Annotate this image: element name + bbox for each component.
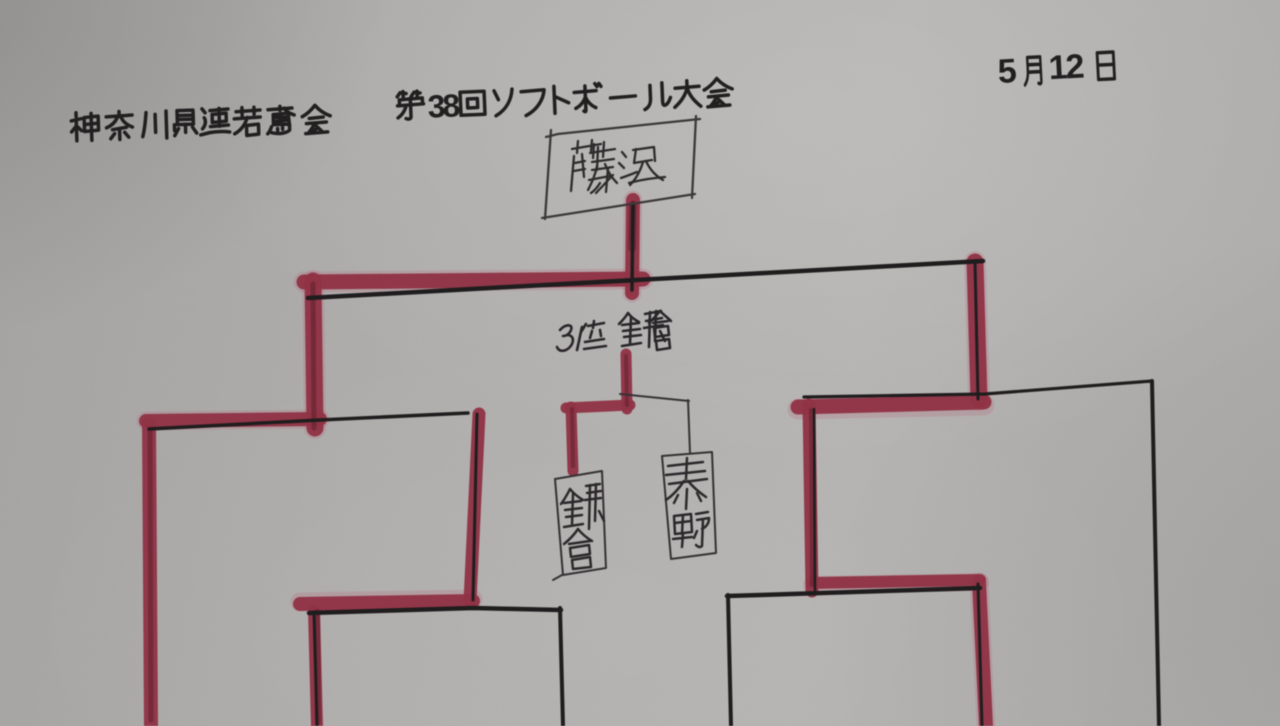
svg-text:5: 5: [997, 52, 1018, 91]
svg-text:12: 12: [1048, 48, 1085, 88]
svg-text:38: 38: [427, 87, 460, 124]
